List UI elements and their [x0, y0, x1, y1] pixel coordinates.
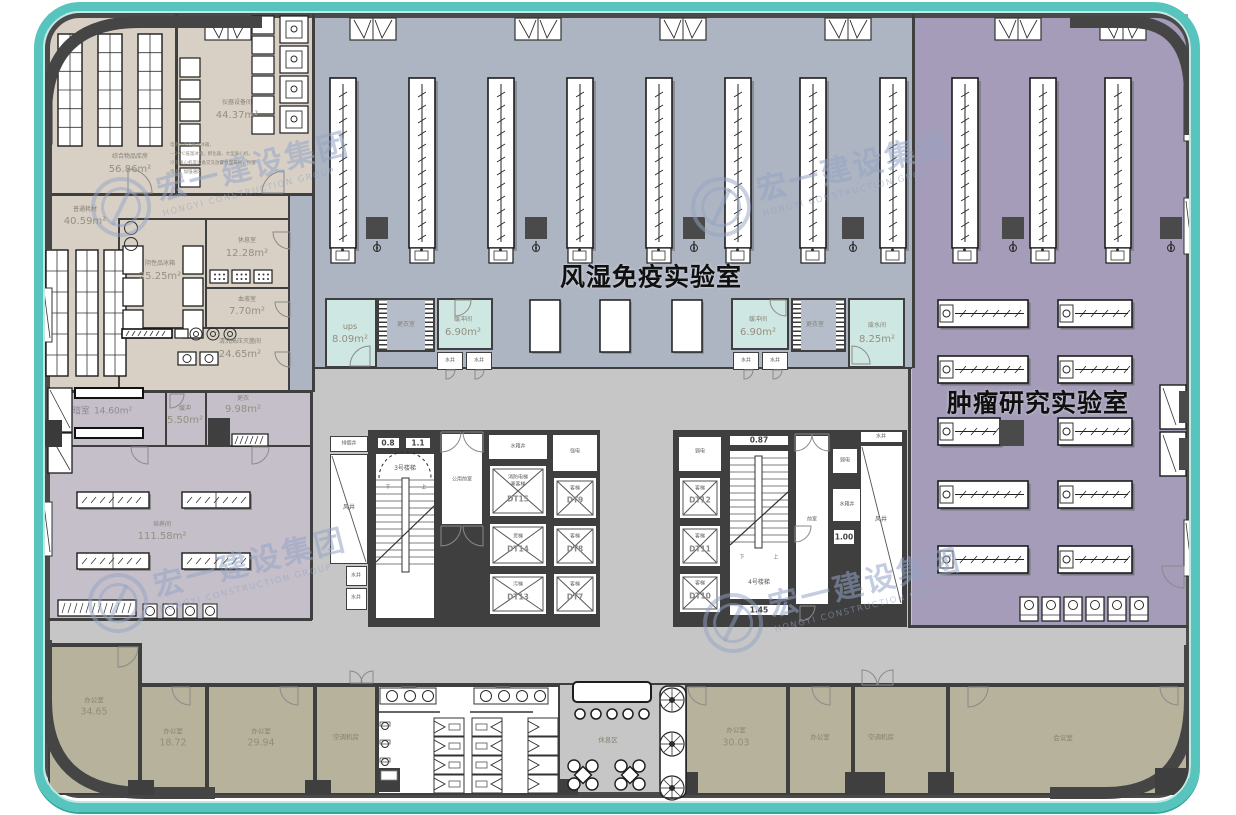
- frame-border: [34, 2, 1200, 812]
- floor-plan: 宏一建设集团HONGYI CONSTRUCTION GROUP 宏一建设集团HO…: [0, 0, 1236, 815]
